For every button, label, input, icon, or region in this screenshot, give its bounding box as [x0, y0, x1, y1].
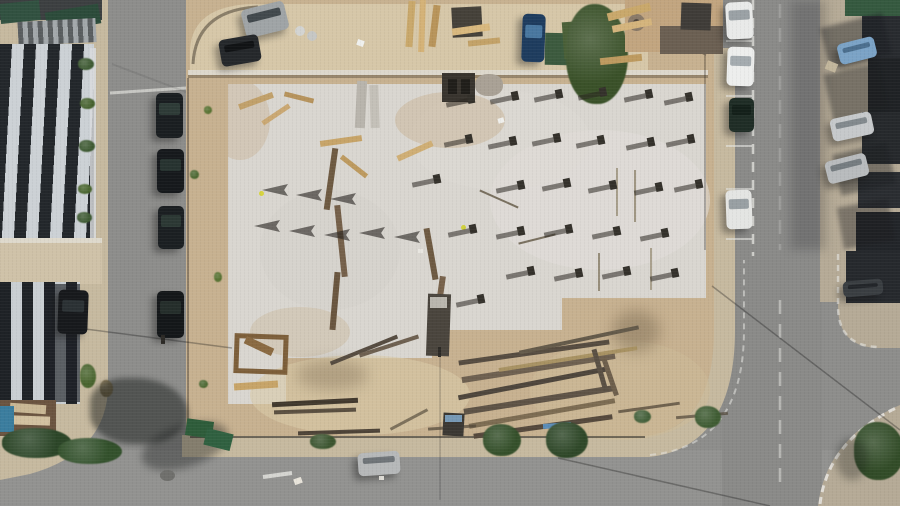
balcony-plant [77, 212, 92, 223]
pergola-slats [17, 18, 96, 46]
rebar-stub-shadow [624, 92, 650, 102]
parked-car-left-street [157, 149, 184, 193]
paper-debris [293, 477, 303, 485]
fence-bush [634, 410, 651, 423]
car-windshield [160, 159, 181, 171]
worker-hivis [259, 191, 264, 196]
timber-scatter [396, 141, 433, 162]
rebar-stub [575, 268, 584, 278]
rebar-stub-shadow [444, 137, 470, 147]
rebar-stub [645, 89, 654, 99]
rebar-stub-shadow [534, 92, 560, 102]
rebar-stub [433, 174, 442, 184]
car-windshield [847, 282, 878, 289]
balcony-plant [79, 140, 95, 152]
pit-slot [461, 79, 470, 94]
tree [566, 4, 628, 104]
rebar-stub [465, 134, 474, 144]
parked-car-left-street [158, 206, 184, 249]
rebar-stub [647, 137, 656, 147]
debris [497, 117, 504, 123]
steel-bundle [298, 429, 380, 436]
rebar-stub-shadow [488, 139, 514, 149]
rebar-chevron-shadow [330, 193, 356, 205]
car-windshield [729, 198, 749, 210]
rebar-stub [695, 179, 704, 189]
car-windshield [729, 10, 750, 21]
formwork-edge [324, 148, 339, 210]
swimming-pool [0, 406, 14, 432]
debris [356, 39, 365, 47]
neighbour-building-roof [660, 26, 723, 54]
timber-scatter [238, 92, 274, 110]
parked-car-bay [729, 98, 754, 132]
rebar-stub [527, 266, 536, 276]
weed [204, 106, 212, 114]
rebar-stub-shadow [490, 94, 516, 104]
car-windshield [161, 215, 181, 227]
rebar-stub-shadow [664, 95, 690, 105]
scene-objects [0, 0, 900, 506]
timber-scatter [340, 155, 368, 179]
rubble-pile [475, 74, 503, 96]
gray-van [240, 0, 290, 39]
car-windshield [224, 40, 255, 53]
rebar-stub [553, 133, 562, 143]
car-windshield [730, 55, 751, 67]
car-windshield [525, 24, 543, 38]
rebar-stub-shadow [506, 269, 532, 279]
rebar-chevron-shadow [296, 189, 322, 201]
sun-lounger [12, 415, 50, 425]
rebar-stub [685, 92, 694, 102]
site-hut-roof [445, 415, 462, 422]
rebar-chevron-shadow [289, 225, 315, 237]
car-windshield [363, 456, 395, 465]
site-container-top [430, 297, 447, 308]
hedge [58, 438, 122, 464]
rebar-stub [517, 226, 526, 236]
green-truck [845, 0, 900, 16]
timber-plank [468, 37, 500, 46]
steel-bundle [272, 398, 358, 407]
rebar-chevron-shadow [359, 227, 385, 239]
rebar-upright [616, 168, 618, 216]
rebar-stub [477, 294, 486, 304]
manhole [160, 470, 175, 481]
rebar-stub-shadow [544, 227, 570, 237]
formwork-edge [424, 228, 439, 280]
rebar-stub-shadow [496, 229, 522, 239]
timber-scatter [261, 103, 290, 125]
rebar-stub-shadow [576, 138, 602, 148]
rebar-stub-shadow [592, 229, 618, 239]
barrel [295, 26, 305, 36]
pit-slot [448, 79, 457, 94]
terrace [0, 243, 102, 284]
timber-scatter [320, 135, 362, 147]
rebar-stub [563, 178, 572, 188]
rebar-stub [623, 266, 632, 276]
parked-car-left-street [157, 291, 184, 338]
formwork-edge [334, 205, 347, 277]
balcony-plant [80, 98, 95, 109]
parked-car-left-street [156, 93, 183, 138]
rebar-stub-shadow [554, 271, 580, 281]
car-windshield [247, 8, 281, 24]
barrel [307, 31, 317, 41]
car-windshield [835, 117, 868, 130]
rebar-chevron-shadow [394, 231, 420, 243]
weed [214, 272, 222, 282]
rebar-stub [555, 89, 564, 99]
rebar-stub-shadow [412, 177, 438, 187]
road-shade [790, 0, 826, 250]
rebar-stub [511, 91, 520, 101]
rebar-stub-shadow [532, 136, 558, 146]
rebar-upright [598, 253, 600, 291]
timber-plank [428, 5, 440, 48]
sidewalk-plant [80, 364, 96, 388]
rebar-stub-shadow [666, 137, 692, 147]
formwork-plank [369, 85, 379, 128]
rebar-stub [469, 224, 478, 234]
rebar-stub [565, 224, 574, 234]
weed [199, 380, 208, 388]
fence-tree [483, 424, 521, 456]
utility-pole [438, 347, 441, 357]
rebar-stub [655, 182, 664, 192]
parked-car-bay [726, 47, 754, 87]
rebar-stub-shadow [602, 269, 628, 279]
rebar-stub [517, 180, 526, 190]
rebar-stub-shadow [456, 297, 482, 307]
rebar-upright [634, 170, 636, 222]
blue-pickup-truck [521, 14, 546, 63]
rebar-stub [509, 136, 518, 146]
paper-debris [379, 476, 384, 480]
tree-shadow [836, 438, 868, 480]
rebar-stub [597, 135, 606, 145]
car-windshield [732, 105, 751, 115]
rebar-stick [390, 408, 428, 430]
rebar-stub [687, 134, 696, 144]
utility-pole [161, 335, 165, 344]
formwork-box [233, 333, 288, 375]
rebar-stub [613, 226, 622, 236]
car-windshield [160, 301, 181, 314]
rebar-stub-shadow [496, 183, 522, 193]
corner-bush [695, 406, 721, 428]
parked-car-bay [725, 1, 754, 39]
formwork-plank [355, 81, 367, 128]
parked-car-bottom-road [357, 451, 401, 477]
rebar-stub-shadow [650, 271, 676, 281]
rebar-stub-shadow [542, 181, 568, 191]
parked-car-driveway [57, 289, 89, 334]
dark-suv [218, 34, 262, 68]
equipment-mat [681, 2, 712, 30]
parked-car-bay [725, 190, 752, 230]
car-windshield [159, 103, 180, 116]
rebar-stub [671, 268, 680, 278]
steel-bundle [274, 408, 356, 415]
rebar-stub-shadow [448, 227, 474, 237]
rebar-stub-shadow [626, 140, 652, 150]
steel-bundle [330, 335, 398, 366]
rebar-upright [650, 248, 652, 290]
aerial-construction-photo [0, 0, 900, 506]
car-windshield [830, 158, 863, 172]
timber-plank [418, 0, 426, 52]
fence-bush [310, 434, 336, 449]
car-windshield [842, 41, 871, 54]
balcony-plant [78, 184, 92, 194]
rebar-stub-shadow [588, 183, 614, 193]
car-windshield [62, 299, 85, 312]
rebar-stub-shadow [640, 231, 666, 241]
fence-tree [546, 422, 588, 458]
rebar-stub [661, 228, 670, 238]
timber-scatter [284, 91, 314, 103]
formwork-edge [329, 272, 340, 330]
timber-beam [234, 380, 278, 390]
rebar-stub-shadow [634, 185, 660, 195]
timber-plank [405, 1, 415, 47]
weed [190, 170, 199, 179]
balcony-plant [78, 58, 94, 70]
rebar-stub-shadow [674, 182, 700, 192]
rebar-chevron-shadow [254, 220, 280, 232]
building-shadow [837, 199, 896, 249]
rebar-chevron-shadow [262, 184, 288, 196]
debris [418, 249, 423, 253]
